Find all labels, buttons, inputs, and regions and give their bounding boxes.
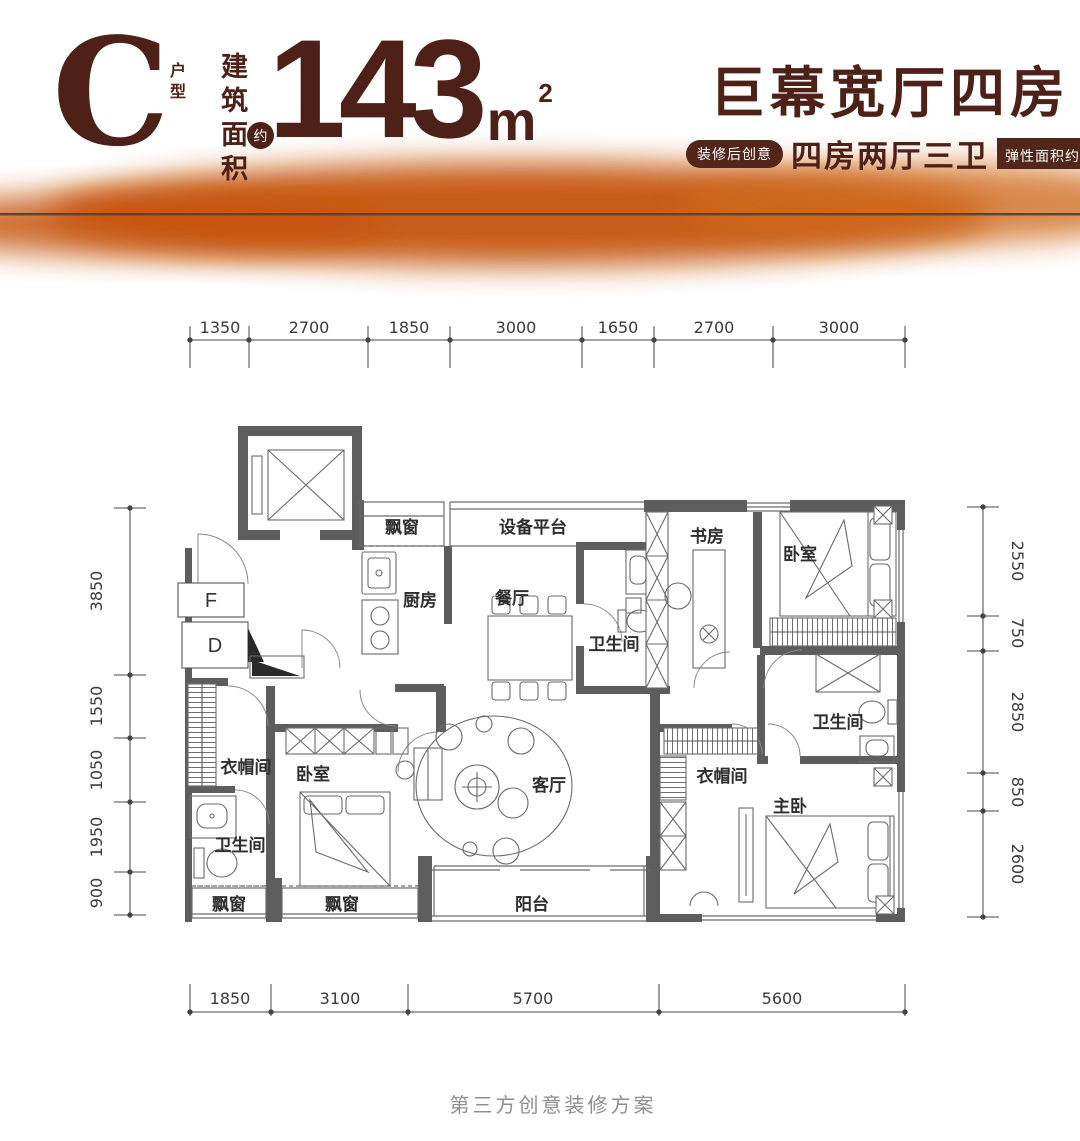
room-label-bay-top: 飘窗: [385, 517, 419, 537]
dim-left-3: 1950: [87, 817, 106, 858]
room-label-cloak-left: 衣帽间: [221, 757, 272, 777]
unit-marker-f: F: [205, 590, 217, 612]
room-label-bedroom-left: 卧室: [296, 764, 330, 784]
dimensions-left: 3850 1550 1050 1950 900: [87, 506, 146, 917]
dim-bottom-2: 5700: [513, 989, 554, 1008]
room-label-bath-mid: 卫生间: [589, 634, 640, 654]
column-markers: [874, 506, 894, 914]
dim-top-1: 2700: [289, 318, 330, 337]
dim-top-4: 1650: [598, 318, 639, 337]
dim-bottom-3: 5600: [762, 989, 803, 1008]
dim-top-3: 3000: [496, 318, 537, 337]
dim-left-2: 1050: [87, 750, 106, 791]
dim-top-5: 2700: [694, 318, 735, 337]
dim-right-2: 2850: [1008, 692, 1027, 733]
room-label-bath-left: 卫生间: [215, 835, 266, 855]
room-label-bay-b1: 飘窗: [212, 894, 246, 914]
room-label-dining: 餐厅: [495, 588, 529, 608]
room-label-bedroom-top: 卧室: [783, 544, 817, 564]
room-label-bath-right: 卫生间: [813, 712, 864, 732]
dim-top-2: 1850: [389, 318, 430, 337]
dimensions-right: 2550 750 2850 850 2600: [967, 505, 1027, 919]
dim-right-1: 750: [1008, 618, 1027, 649]
room-label-equipment: 设备平台: [499, 517, 567, 537]
room-label-living: 客厅: [531, 775, 566, 795]
dim-top-0: 1350: [200, 318, 241, 337]
room-label-kitchen: 厨房: [403, 590, 437, 610]
footer-note: 第三方创意装修方案: [450, 1094, 657, 1117]
windows-and-openings: [192, 502, 903, 921]
dimensions-top: 1350 2700 1850 3000 1650 2700 3000: [188, 318, 907, 368]
room-label-cloak-right: 衣帽间: [697, 766, 748, 786]
room-label-study: 书房: [690, 526, 724, 546]
dimensions-bottom: 1850 3100 5700 5600: [188, 984, 907, 1016]
dim-left-0: 3850: [87, 571, 106, 612]
dim-right-3: 850: [1008, 777, 1027, 808]
dim-bottom-1: 3100: [320, 989, 361, 1008]
room-label-balcony: 阳台: [515, 894, 549, 914]
dim-left-4: 900: [87, 878, 106, 909]
unit-marker-d: D: [208, 635, 222, 657]
dim-right-4: 2600: [1008, 844, 1027, 885]
room-label-bay-b2: 飘窗: [325, 894, 359, 914]
floor-plan: 飘窗 设备平台 厨房 餐厅 卫生间 书房 卧室 卫生间 衣帽间 主卧 客厅 阳台…: [0, 0, 1080, 1141]
dim-top-6: 3000: [819, 318, 860, 337]
dim-left-1: 1550: [87, 686, 106, 727]
room-label-master: 主卧: [773, 796, 807, 816]
floorplan-poster: C 户型 建筑面积 约 143 m 2 巨幕宽厅四房 装修后创意 四房两厅三卫 …: [0, 0, 1080, 1141]
dim-right-0: 2550: [1008, 541, 1027, 582]
dim-bottom-0: 1850: [210, 989, 251, 1008]
